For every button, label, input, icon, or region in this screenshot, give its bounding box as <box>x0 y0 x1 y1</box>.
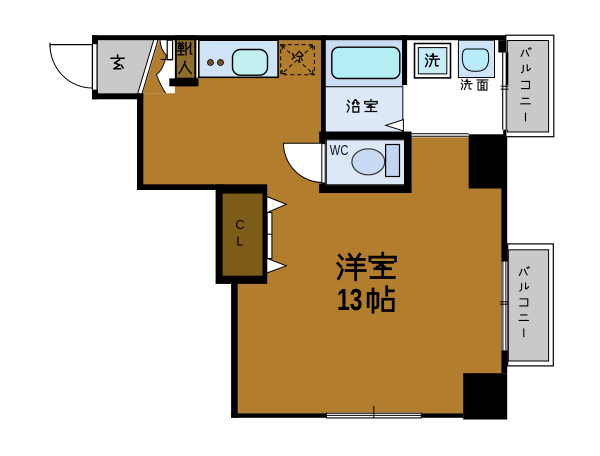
svg-text:L: L <box>236 233 243 248</box>
svg-text:C: C <box>235 217 244 232</box>
svg-text:13: 13 <box>337 282 363 317</box>
svg-text:WC: WC <box>330 143 349 159</box>
